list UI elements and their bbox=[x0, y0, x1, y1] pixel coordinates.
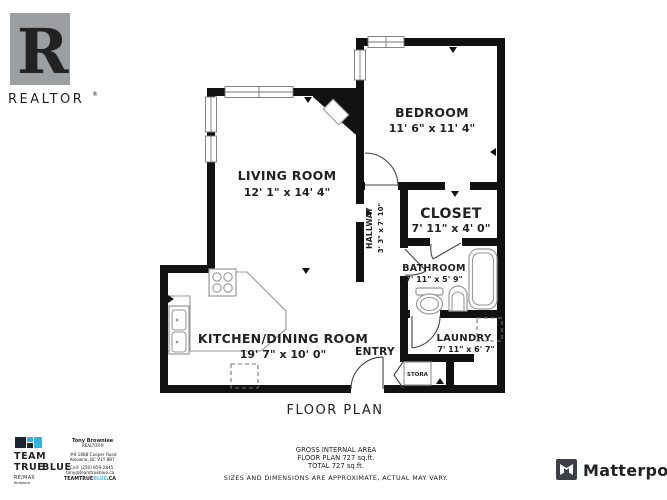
matterport-icon bbox=[556, 459, 577, 480]
kitchen-dims: 19' 7" x 10' 0" bbox=[240, 348, 327, 361]
windows bbox=[206, 37, 405, 163]
hallway-label: HALLWAY bbox=[365, 207, 374, 249]
remax-sub: Kelowna bbox=[14, 480, 30, 485]
closet-dims: 7' 11" x 4' 0" bbox=[412, 222, 491, 235]
team-true-blue-icon bbox=[15, 437, 42, 448]
bedroom-label: BEDROOM bbox=[395, 105, 469, 120]
plan-title: FLOOR PLAN bbox=[287, 403, 384, 418]
agent-website-part1: TEAMTRUE bbox=[64, 476, 93, 482]
footer-floorplan-area: FLOOR PLAN 727 sq.ft. bbox=[297, 454, 374, 462]
matterport-logo: Matterport bbox=[556, 459, 667, 480]
agent-title: REALTOR® bbox=[82, 443, 104, 448]
team-word: TEAM bbox=[14, 451, 46, 462]
closet-label: CLOSET bbox=[420, 206, 482, 222]
storage-label: STORA bbox=[407, 372, 429, 378]
room-laundry: LAUNDRY 7' 11" x 6' 7" bbox=[436, 333, 494, 354]
matterport-wordmark: Matterport bbox=[583, 461, 667, 480]
room-storage: STORA bbox=[407, 372, 429, 378]
room-living: LIVING ROOM 12' 1" x 14' 4" bbox=[238, 168, 337, 199]
agent-email: tony@teamtrueblue.ca bbox=[66, 470, 115, 475]
agent-addr2: Kelowna, BC V1Y 8B7 bbox=[70, 457, 115, 462]
bathroom-label: BATHROOM bbox=[402, 263, 466, 274]
bathroom-dims: 7' 11" x 5' 9" bbox=[405, 275, 462, 284]
agent-website-part3: .CA bbox=[107, 476, 116, 482]
room-kitchen: KITCHEN/DINING ROOM 19' 7" x 10' 0" bbox=[198, 331, 368, 361]
footer-area: GROSS INTERNAL AREA FLOOR PLAN 727 sq.ft… bbox=[224, 446, 448, 482]
footer-total-area: TOTAL 727 sq.ft. bbox=[307, 462, 364, 470]
agent-website: TEAMTRUEBLUE.CA bbox=[64, 476, 116, 482]
room-closet: CLOSET 7' 11" x 4' 0" bbox=[412, 206, 491, 235]
realtor-wordmark: REALTOR bbox=[8, 92, 84, 107]
entry-label: ENTRY bbox=[355, 346, 395, 358]
laundry-dims: 7' 11" x 6' 7" bbox=[437, 345, 494, 354]
laundry-label: LAUNDRY bbox=[436, 333, 492, 344]
agent-info: Tony Brownlee REALTOR® #8-1888 Cooper Ro… bbox=[64, 438, 117, 482]
footer-disclaimer: SIZES AND DIMENSIONS ARE APPROXIMATE, AC… bbox=[224, 474, 448, 482]
room-bathroom: BATHROOM 7' 11" x 5' 9" bbox=[402, 263, 466, 284]
floor-plan-canvas: BEDROOM 11' 6" x 11' 4" LIVING ROOM 12' … bbox=[0, 0, 667, 500]
hallway-dims: 3' 3" x 7' 10" bbox=[377, 203, 385, 253]
room-bedroom: BEDROOM 11' 6" x 11' 4" bbox=[389, 105, 476, 135]
living-room-dims: 12' 1" x 14' 4" bbox=[244, 186, 331, 199]
agent-website-part2: BLUE bbox=[93, 476, 107, 482]
realtor-logo: R REALTOR ® bbox=[8, 13, 98, 107]
living-room-label: LIVING ROOM bbox=[238, 168, 337, 183]
footer-gross-area: GROSS INTERNAL AREA bbox=[296, 446, 377, 454]
team-true-blue-block: TEAM TRUE BLUE RE/MAX Kelowna Tony Brown… bbox=[14, 437, 117, 485]
kitchen-fixtures bbox=[168, 269, 286, 388]
bedroom-dims: 11' 6" x 11' 4" bbox=[389, 122, 476, 135]
realtor-r-icon: R bbox=[17, 15, 69, 88]
room-entry: ENTRY bbox=[355, 346, 395, 358]
kitchen-label: KITCHEN/DINING ROOM bbox=[198, 331, 368, 346]
room-hallway: HALLWAY 3' 3" x 7' 10" bbox=[365, 203, 385, 253]
realtor-reg-mark: ® bbox=[92, 91, 98, 98]
true-word: TRUE bbox=[14, 462, 44, 473]
